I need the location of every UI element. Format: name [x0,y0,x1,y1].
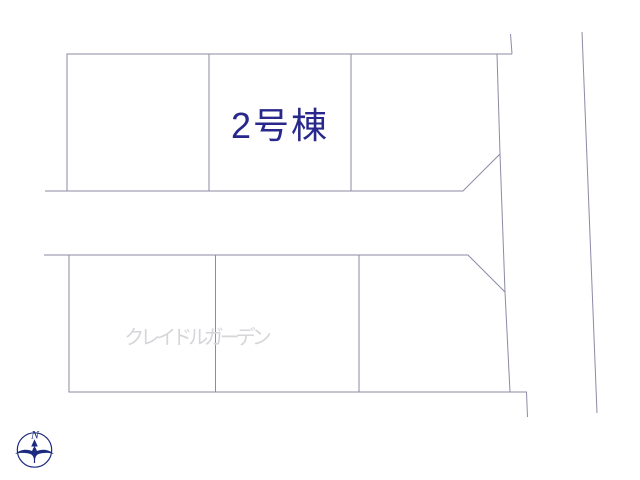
site-plan-drawing: 2号棟 クレイドルガーデン N [0,0,640,480]
compass-icon: N [15,428,54,468]
road-edge-row2-bottom-right [510,392,528,417]
north-label: N [30,428,40,442]
lower-lot-row [69,255,510,392]
compass-bird [15,447,54,459]
lot-1 [67,54,209,191]
lot-5 [216,255,360,392]
watermark-text: クレイドルガーデン [124,326,270,349]
road-east-edge [582,32,597,413]
site-plan: 2号棟 クレイドルガーデン N [0,0,640,480]
road-west-edge [500,154,505,292]
building-2-label: 2号棟 [231,105,329,146]
lot-6 [359,255,510,392]
lot-3 [351,54,500,191]
lot-4 [69,255,216,392]
road-edge-top-right [497,34,512,54]
